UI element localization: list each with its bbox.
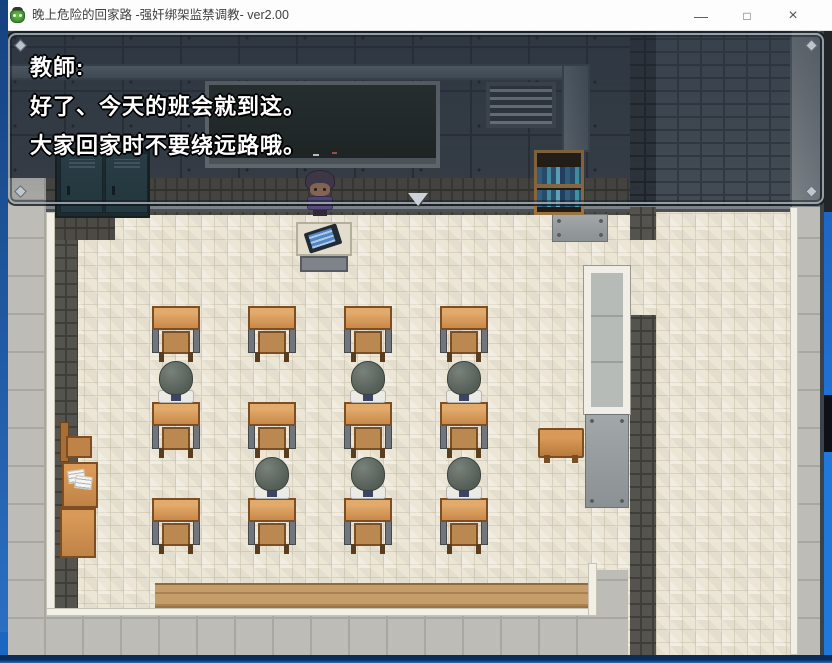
maximize-button[interactable]: □ bbox=[724, 0, 770, 31]
minimize-button[interactable]: — bbox=[678, 0, 724, 31]
student-desk bbox=[344, 306, 392, 362]
title-bar[interactable]: 晚上危险的回家路 -强奸绑架监禁调教- ver2.00 — □ × bbox=[0, 0, 832, 31]
student-desk bbox=[248, 498, 296, 554]
dialog-box[interactable]: 教師: 好了、今天的班会就到这。 大家回家时不要绕远路哦。 bbox=[8, 33, 824, 204]
student-character bbox=[446, 361, 482, 403]
student-character bbox=[254, 457, 290, 499]
window-title: 晚上危险的回家路 -强奸绑架监禁调教- ver2.00 bbox=[32, 0, 289, 31]
close-button[interactable]: × bbox=[770, 0, 816, 31]
student-desk bbox=[152, 402, 200, 458]
student-character bbox=[350, 361, 386, 403]
dialog-corner-ornament bbox=[805, 185, 818, 198]
dialog-line: 大家回家时不要绕远路哦。 bbox=[30, 126, 306, 165]
student-desk bbox=[152, 306, 200, 362]
desktop-edge-right bbox=[824, 31, 832, 212]
wood-bench bbox=[538, 428, 584, 458]
dialog-corner-ornament bbox=[14, 39, 27, 52]
desktop-edge-right bbox=[824, 395, 832, 452]
student-desk bbox=[344, 498, 392, 554]
dialog-line: 好了、今天的班会就到这。 bbox=[30, 87, 306, 126]
student-desk bbox=[152, 498, 200, 554]
continue-arrow-icon bbox=[408, 193, 428, 206]
game-viewport[interactable]: 教師: 好了、今天的班会就到这。 大家回家时不要绕远路哦。 bbox=[8, 31, 824, 655]
desktop-edge-right bbox=[824, 212, 832, 395]
student-character bbox=[350, 457, 386, 499]
student-character bbox=[446, 457, 482, 499]
desktop-edge-bottom bbox=[0, 655, 832, 663]
dialog-corner-ornament bbox=[14, 185, 27, 198]
student-desk bbox=[440, 402, 488, 458]
desktop-edge-right bbox=[824, 452, 832, 655]
student-desk bbox=[440, 498, 488, 554]
student-character bbox=[158, 361, 194, 403]
student-desk bbox=[440, 306, 488, 362]
side-desk-papers bbox=[62, 462, 98, 508]
desktop-edge-left bbox=[0, 0, 8, 632]
side-desk bbox=[60, 508, 96, 558]
student-desk bbox=[344, 402, 392, 458]
student-desk bbox=[248, 306, 296, 362]
dialog-corner-ornament bbox=[805, 39, 818, 52]
desktop-screen: 晚上危险的回家路 -强奸绑架监禁调教- ver2.00 — □ × bbox=[0, 0, 832, 663]
game-app-icon bbox=[9, 7, 26, 24]
dialog-text: 教師: 好了、今天的班会就到这。 大家回家时不要绕远路哦。 bbox=[30, 48, 306, 165]
dialog-line-speaker: 教師: bbox=[30, 48, 306, 87]
papers bbox=[74, 475, 92, 490]
student-desk bbox=[248, 402, 296, 458]
